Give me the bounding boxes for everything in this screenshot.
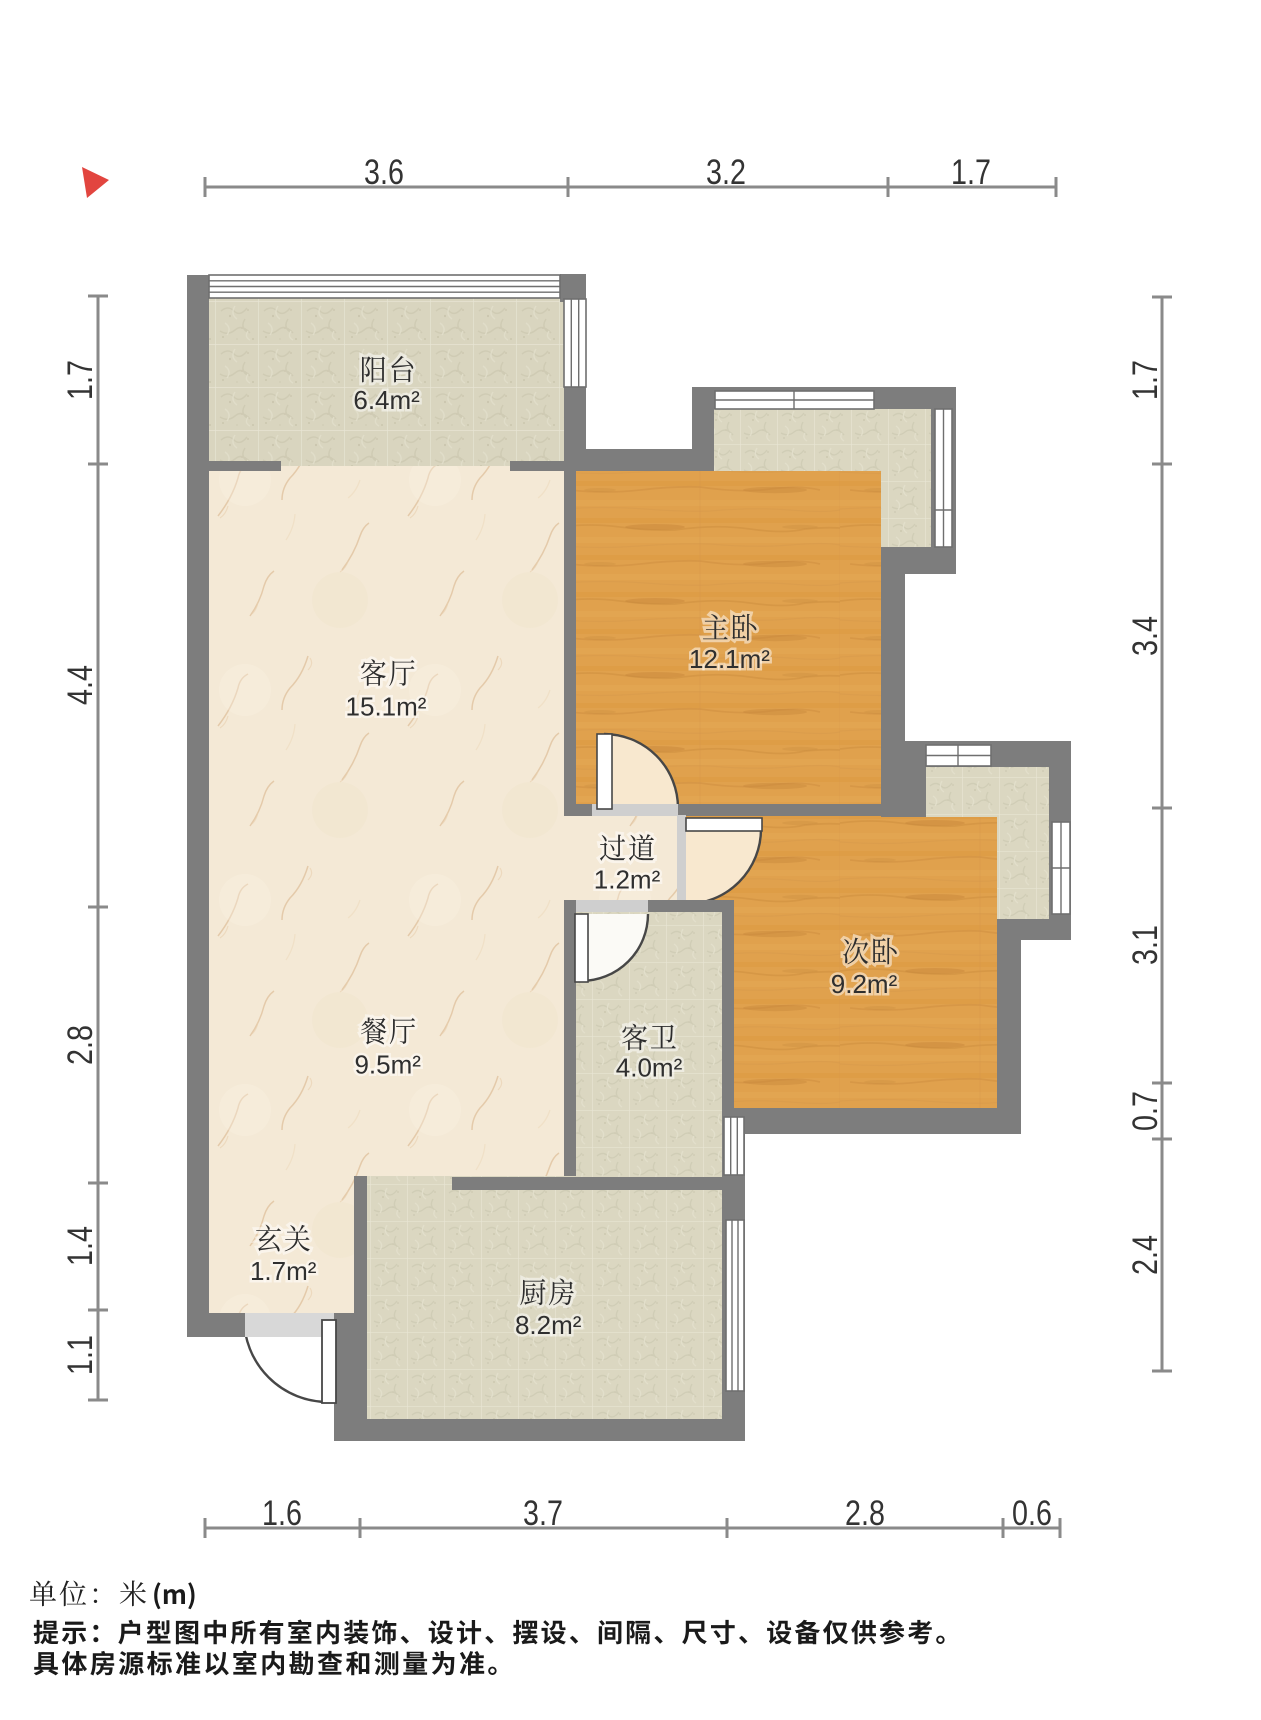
svg-text:6.4m²: 6.4m² <box>353 385 420 415</box>
svg-text:4.0m²: 4.0m² <box>616 1053 683 1083</box>
svg-text:2.8: 2.8 <box>60 1025 99 1065</box>
svg-text:1.7: 1.7 <box>60 360 99 400</box>
svg-text:1.6: 1.6 <box>262 1493 302 1532</box>
svg-text:0.7: 0.7 <box>1125 1091 1164 1131</box>
svg-text:9.5m²: 9.5m² <box>354 1050 421 1080</box>
svg-text:3.2: 3.2 <box>706 152 746 191</box>
svg-text:3.6: 3.6 <box>364 152 404 191</box>
svg-text:4.4: 4.4 <box>60 665 99 705</box>
svg-text:1.7: 1.7 <box>1125 360 1164 400</box>
svg-text:1.7: 1.7 <box>951 152 991 191</box>
svg-text:3.1: 3.1 <box>1125 925 1164 965</box>
svg-text:8.2m²: 8.2m² <box>515 1310 582 1340</box>
svg-text:1.2m²: 1.2m² <box>594 865 661 895</box>
svg-text:15.1m²: 15.1m² <box>346 691 427 721</box>
svg-text:2.4: 2.4 <box>1125 1235 1164 1275</box>
svg-text:1.4: 1.4 <box>60 1226 99 1266</box>
svg-text:1.1: 1.1 <box>60 1335 99 1375</box>
svg-text:3.4: 3.4 <box>1125 616 1164 656</box>
svg-text:0.6: 0.6 <box>1012 1493 1052 1532</box>
svg-text:1.7m²: 1.7m² <box>250 1256 317 1286</box>
svg-text:3.7: 3.7 <box>523 1493 563 1532</box>
svg-text:12.1m²: 12.1m² <box>689 644 770 674</box>
svg-text:9.2m²: 9.2m² <box>831 969 898 999</box>
svg-text:2.8: 2.8 <box>845 1493 885 1532</box>
